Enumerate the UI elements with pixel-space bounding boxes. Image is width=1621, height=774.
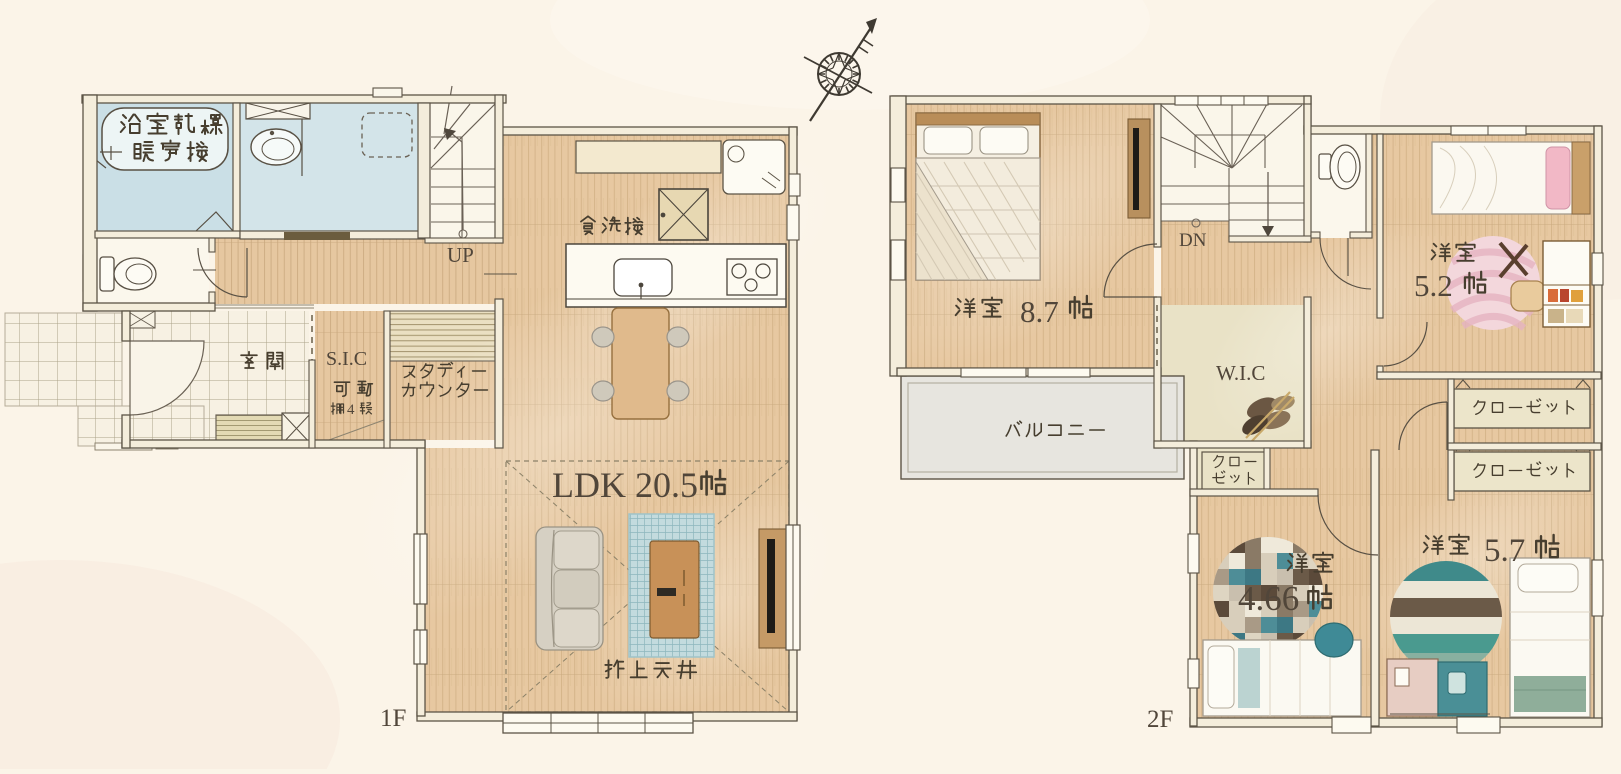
svg-text:8.7: 8.7 xyxy=(1020,294,1059,329)
svg-text:5.2: 5.2 xyxy=(1414,268,1453,303)
svg-text:4: 4 xyxy=(347,402,355,418)
svg-text:5.7: 5.7 xyxy=(1484,533,1525,569)
svg-text:DN: DN xyxy=(1179,230,1207,251)
svg-text:1F: 1F xyxy=(380,705,406,732)
svg-text:4.66: 4.66 xyxy=(1238,579,1299,618)
svg-text:W.I.C: W.I.C xyxy=(1216,361,1265,385)
svg-text:2F: 2F xyxy=(1147,706,1173,733)
svg-text:LDK 20.5: LDK 20.5 xyxy=(552,465,698,505)
svg-text:S.I.C: S.I.C xyxy=(326,348,367,370)
svg-text:UP: UP xyxy=(447,243,474,267)
